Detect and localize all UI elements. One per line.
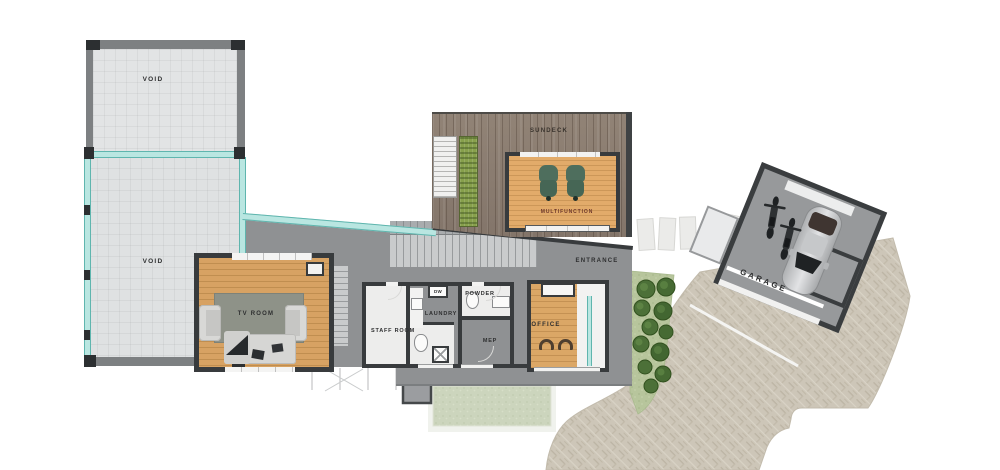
lounge-chair: [566, 165, 585, 201]
office-closet: [541, 283, 575, 297]
glass-wall-void-left: [84, 157, 91, 357]
rooms-left-wall: [362, 282, 366, 368]
multifunction-room: [505, 152, 620, 232]
powder-label: POWDER: [455, 291, 505, 297]
floor-plan: DW: [0, 0, 1000, 470]
wall-post: [84, 205, 90, 215]
bottom-window: [461, 364, 493, 368]
staff-toilet: [414, 334, 428, 352]
multifunction-label: MULTIFUNCTION: [522, 209, 612, 215]
sofa-pillow: [251, 349, 264, 360]
laundry-label: LAUNDRY: [411, 311, 471, 317]
entrance-label: ENTRANCE: [567, 258, 627, 264]
sundeck-right-wall: [626, 112, 632, 237]
staff-room-label: STAFF ROOM: [353, 328, 433, 334]
door-gap: [472, 282, 484, 286]
dishwasher-label: DW: [430, 289, 446, 294]
dishwasher-box: DW: [428, 285, 448, 298]
void-upper-label: VOID: [118, 76, 188, 83]
sundeck-label: SUNDECK: [509, 128, 589, 134]
wall-post: [86, 40, 100, 50]
bottom-window: [418, 364, 453, 368]
office-chair: [558, 339, 573, 350]
washing-machine: [432, 346, 449, 363]
main-staircase: [390, 234, 537, 267]
wall-post: [84, 270, 90, 280]
sundeck-planter: [459, 136, 478, 227]
mf-window-top: [520, 152, 600, 157]
lounge-chair-foot: [546, 196, 551, 201]
sundeck-stair: [433, 136, 457, 198]
staff-room-floor: [366, 286, 406, 364]
lounge-chair: [539, 165, 558, 201]
wall-post: [84, 355, 96, 367]
side-staircase: [332, 266, 348, 346]
void-upper-room: [86, 40, 245, 152]
tv-room-label: TV ROOM: [216, 311, 296, 317]
planter-box: [403, 384, 431, 403]
tv-room-cabinet: [306, 262, 324, 276]
glass-wall-void-right: [239, 157, 246, 255]
lawn: [433, 386, 551, 426]
wall-post: [84, 330, 90, 340]
mep-label: MEP: [465, 338, 515, 344]
void-lower-label: VOID: [118, 258, 188, 265]
foyer-glass-door: [587, 296, 592, 366]
wall-post: [231, 40, 245, 50]
rooms-right-wall: [510, 282, 514, 368]
lounge-chair-seat: [567, 180, 584, 197]
glass-wall-between-voids: [88, 151, 242, 158]
wall-post: [84, 147, 94, 159]
mf-window-bottom: [525, 225, 610, 232]
office-bottom-window: [534, 367, 600, 372]
office-chair: [539, 339, 554, 350]
tv-room-window-top: [232, 253, 312, 260]
laundry-sink: [411, 298, 423, 310]
office-label: OFFICE: [524, 322, 568, 328]
tv-room-window-bottom: [225, 367, 295, 372]
sofa-pillow: [271, 343, 283, 352]
building-bottom-edge: [396, 384, 632, 386]
lounge-chair-foot: [573, 196, 578, 201]
lounge-chair-seat: [540, 180, 557, 197]
wall-post: [234, 147, 245, 159]
